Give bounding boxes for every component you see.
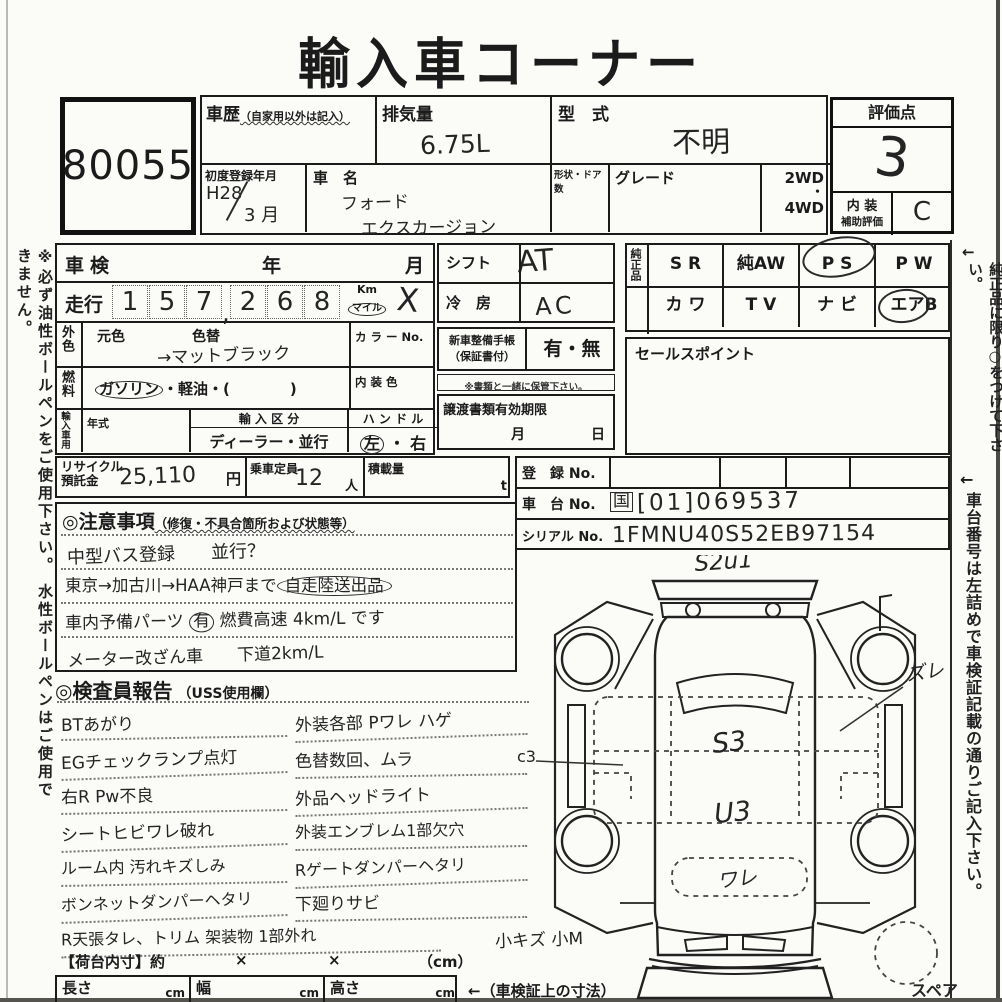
caution-line-2-text: 東京→加古川→HAA神戸まで [65,576,277,595]
diagram-u3-mark: U3 [713,796,753,830]
car-rear-light-left [685,936,727,951]
genuine-parts-row1: 純正品 S R 純AW P S P W [625,243,950,288]
year-type-cell: 年式 [83,410,191,452]
zure-leader-line [840,687,903,731]
dimension-table: 長さ cm 幅 cm 高さ cm [55,975,457,1002]
inspector-header: ◎検査員報告 （USS使用欄） [55,675,533,704]
recycle-value: 25,110 [119,463,197,491]
shift-ac-box: シフト AT 冷 房 AC [437,243,615,323]
spare-tire-label: スペア [911,981,958,1000]
score-value-area: 3 [833,128,951,191]
first-registration-month: 3 月 [244,201,279,227]
genuine-sr: S R [670,254,701,274]
caution-line-2: 東京→加古川→HAA神戸まで自走陸送出品 [65,572,392,596]
color-no-cell: カ ラ ー No. [349,323,437,366]
fuel-label: 燃料 [57,370,76,398]
displacement-label: 排気量 [382,100,545,125]
inspector-rule [57,701,529,703]
import-class-label: 輸 入 区 分 [191,410,347,428]
right-margin-note-chassis: 車台番号は左詰めで車検証記載の通りご記入下さい。 [960,492,984,962]
serial-no-row: シリアル No. 1FMNU40S52EB97154 [517,520,948,552]
cautions-rule [61,568,513,570]
score-value: 3 [871,126,913,190]
fuel-options-rest: ・軽油・( ) [163,380,297,398]
ps-circle-mark [799,231,879,283]
service-book-label1: 新車整備手帳 [439,332,525,348]
genuine-navi: ナ ビ [817,295,857,315]
service-book-label2: （保証書付） [439,348,525,364]
genuine-kawa: カ ワ [666,295,706,315]
right-arrow-icon: ← [962,243,975,261]
car-right-side-outline [817,602,915,933]
mileage-digit-cell: 1 [112,285,148,319]
car-front-bar [653,581,817,599]
shift-value: AT [516,243,555,280]
load-cell: 積載量 t [365,458,512,496]
genuine-navi-cell: ナ ビ [800,285,876,327]
car-right-front-fender [851,627,915,691]
ac-row: 冷 房 AC [439,284,613,321]
mileage-digit: 1 [122,287,139,317]
caution-line-3-text2: 燃費高速 4km/L です [219,608,385,631]
inspector-right-6: 下廻りサビ [295,886,528,922]
mileage-row: 走行 1 5 7 , 2 6 8 Km マイル X [57,283,433,323]
right-margin-note-genuine: 純正品に限り○をつけて下さい。 [964,262,1002,472]
lot-number: 80055 [62,143,194,189]
cargo-dimension-label: 【荷台内寸】約 [60,953,165,971]
recycle-cell: リサイクル 預託金 25,110 円 [57,458,247,496]
cautions-rule [61,534,513,536]
length-unit: cm [165,986,185,1000]
diagram-top-mark: S2u1 [694,555,754,577]
inspector-left-6: ボンネットダンパーヘタリ [61,884,288,924]
chassis-country-mark: 国 [610,492,633,512]
keep-note-strip: ※書類と一緒に保管下さい。 [437,374,615,391]
load-unit: t [501,479,507,494]
diagram-zure-mark: ズレ [905,659,946,686]
fuel-gasoline-circled: ガソリン [95,381,163,399]
genuine-ps-cell: P S [800,245,876,285]
model-code-label: 型 式 [558,105,609,125]
serial-no-value: 1FMNU40S52EB97154 [612,521,876,548]
sales-point-box: セールスポイント [625,337,950,455]
dimension-note: ←（車検証上の寸法） [468,980,616,1001]
page-title: 輸入車コーナー [0,20,1002,99]
mile-label-circled: マイル [348,303,386,316]
grade-label: グレード [615,167,755,188]
service-book-label-cell: 新車整備手帳 （保証書付） [439,329,527,369]
inspector-right-5: Rゲートダンパーヘタリ [295,849,528,889]
shift-row: シフト AT [439,245,613,284]
mileage-digit: 7 [196,287,213,317]
height-cell: 高さ cm [325,977,459,1002]
reg-divider [609,458,611,487]
inspector-left-3: 右R Pw不良 [61,779,288,815]
inspector-left-4: シートヒビワレ破れ [61,813,288,853]
capacity-cell: 乗車定員 12 人 [247,458,365,496]
caution-line-3: 車内予備パーツ 有 燃費高速 4km/L です [65,603,385,634]
width-label: 幅 [191,979,211,997]
right-arrow-icon2: ← [960,470,973,489]
transfer-day-label: 日 [591,424,605,444]
genuine-kawa-cell: カ ワ [649,285,724,327]
car-left-door-edge [615,619,653,689]
recycle-row: リサイクル 預託金 25,110 円 乗車定員 12 人 積載量 t [55,456,510,498]
car-right-rear-wheel [858,816,908,866]
import-label: 輸入車用 [57,411,71,449]
handle-left-circled: 左 [360,435,384,454]
genuine-pw-cell: P W [876,245,952,285]
mileage-label: 走行 [65,290,103,317]
fuel-label-cell: 燃料 [57,368,83,408]
caution-line-4: メーター改ざん車 下道2km/L [67,638,324,672]
handle-cell: ハ ン ド ル 左 ・ 右 [349,410,437,452]
service-book-options-cell: 有・無 [527,329,617,369]
mileage-digit-cell: 6 [267,285,303,319]
car-rear-bumper-line1 [649,959,821,968]
transfer-doc-label: 譲渡書類有効期限 [439,396,613,421]
mileage-digit: 2 [240,287,257,317]
displacement-value: 6.75L [420,127,546,160]
import-class-cell: 輸 入 区 分 ディーラー・並行 [191,410,349,452]
cautions-header: ◎注意事項（修復・不具合箇所および状態等） [57,504,515,534]
inspector-right-2: 色替数回、ムラ [295,743,528,779]
scan-edge-left [6,0,8,1002]
load-label: 積載量 [365,462,404,476]
inspector-right-3: 外品ヘッドライト [295,777,528,817]
import-label-cell: 輸入車用 [57,410,83,452]
service-book-options: 有・無 [543,338,600,360]
mileage-digit-cell: 2 [230,285,266,319]
cautions-title-note: （修復・不具合箇所および状態等） [155,516,355,531]
c3-leader-line [536,761,623,765]
ac-divider [519,245,521,321]
transfer-doc-box: 譲渡書類有効期限 月 日 [437,394,615,450]
car-damage-diagram: S2u1 S3 U3 ワレ ズレ スペア [535,555,1002,1002]
first-registration-cell: 初度登録年月 H28 3 月 [202,165,307,232]
cautions-rule [61,602,513,604]
shaken-year-label: 年 [262,251,281,278]
car-front-marker-left [686,603,700,617]
cabin-dashed-step-left [594,773,631,799]
interior-score-label-cell: 内 装 補助評価 [833,193,893,235]
car-windshield [677,674,793,713]
width-unit: cm [299,986,319,1000]
width-cell: 幅 cm [191,977,325,1002]
car-rear-light-right [743,936,785,951]
exterior-color-label-cell: 外色 [57,323,83,366]
registration-table: 登 録 No. 車 台 No. 国 [01]069537 シリアル No. 1F… [515,456,950,550]
model-code-value: 不明 [672,118,731,161]
airbag-circle-mark [876,286,931,325]
genuine-parts-row2: カ ワ T V ナ ビ エアB [625,285,950,332]
car-left-side-outline [555,602,653,933]
inspector-title-note: （USS使用欄） [178,686,279,702]
genuine-tv-cell: T V [724,285,800,327]
diagram-s3-mark: S3 [710,726,747,760]
import-row: 輸入車用 年式 輸 入 区 分 ディーラー・並行 ハ ン ド ル 左 ・ 右 [57,410,433,452]
drive-4wd-label: 4WD [768,199,824,217]
inspector-right-1: 外装各部 Pワレ ハゲ [295,703,528,743]
shape-doors-cell: 形状・ドア数 [552,165,610,232]
keep-note: ※書類と一緒に保管下さい。 [464,382,587,393]
inspector-left-1: BTあがり [61,707,287,741]
genuine-pw: P W [895,254,932,274]
mileage-digit: 6 [277,287,294,317]
interior-label-line2: 補助評価 [833,214,891,229]
color-change-value: →マットブラック [157,339,291,369]
car-left-rear-fender [555,809,619,873]
fuel-row: 燃料 ガソリン・軽油・( ) 内 装 色 [57,368,433,410]
interior-color-cell: 内 装 色 [349,368,437,408]
genuine-aw-cell: 純AW [724,245,800,285]
inspector-left-5: ルーム内 汚れキズしみ [61,851,288,887]
car-right-rear-fender [851,809,915,873]
capacity-value: 12 [295,466,323,491]
shift-label: シフト [446,252,491,273]
car-rear-panel-line [657,927,813,935]
ac-label: 冷 房 [446,292,491,313]
shaken-row: 車検 年 月 [57,245,433,283]
caution-line-3-circled: 有 [189,612,214,632]
cargo-x1: × [235,951,248,969]
car-body-outline [655,617,815,955]
shaken-month-label: 月 [405,251,424,278]
interior-score-value-cell: C [893,193,951,235]
mileage-cross-mark: X [395,280,421,320]
reg-divider [785,458,787,487]
year-type-label: 年式 [87,417,109,430]
ac-value: AC [534,291,576,321]
reg-no-row: 登 録 No. [517,458,948,489]
cautions-rule [61,636,513,638]
inspector-right-4: 外装エンブレム1部欠穴 [295,815,528,851]
drive-type-cell: 2WD ・ 4WD [762,165,830,232]
score-header: 評価点 [833,100,951,128]
chassis-no-value: [01]069537 [637,488,802,517]
lot-number-box: 80055 [60,97,196,235]
mileage-digit: 5 [159,287,176,317]
drive-dot: ・ [768,187,824,199]
cargo-x2: × [328,951,341,969]
cabin-dashed-step-right [841,773,878,799]
first-registration-label: 初度登録年月 [205,167,302,184]
car-left-rear-wheel [562,816,612,866]
handle-dot: ・ [389,434,405,453]
capacity-label: 乗車定員 [247,462,298,476]
grade-cell: グレード [610,165,762,232]
height-label: 高さ [325,979,360,997]
sales-point-label: セールスポイント [635,345,755,363]
diagram-ware-mark: ワレ [716,864,759,893]
exterior-color-label: 外色 [57,325,76,353]
inspector-title: ◎検査員報告 [55,679,172,703]
caution-line-1: 中型バス登録 並行？ [67,537,266,570]
genuine-aw: 純AW [737,254,785,274]
inspector-c3-mark: c3 [517,747,536,766]
interior-score-value: C [913,197,931,227]
history-cell: 車歴（自家用以外は記入） [202,97,377,165]
length-label: 長さ [57,979,92,997]
mileage-digit-cell: 5 [149,285,185,319]
mileage-digit: 8 [314,287,331,317]
inspector-left-2: EGチェックランプ点灯 [61,741,288,781]
caution-line-2-circled: 自走陸送出品 [277,576,392,596]
serial-no-label: シリアル No. [517,520,603,545]
car-right-front-wheel [858,634,908,684]
handle-label: ハ ン ド ル [349,410,437,428]
handle-right: 右 [410,434,426,453]
original-color-label: 元色 [97,326,125,346]
interior-score-row: 内 装 補助評価 C [833,191,951,235]
inspector-report: ◎検査員報告 （USS使用欄） BTあがり 外装各部 Pワレ ハゲ EGチェック… [55,675,533,965]
car-left-door-window [568,705,585,807]
genuine-airbag-cell: エアB [876,285,952,327]
interior-color-label: 内 装 色 [355,375,398,389]
car-left-front-wheel [562,634,612,684]
shaken-label: 車検 [65,251,115,278]
auction-sheet: 輸入車コーナー 80055 車歴（自家用以外は記入） 排気量 6.75L 型 式… [0,0,1002,1002]
genuine-sr-cell: S R [649,245,724,285]
car-right-door-window [885,705,902,807]
interior-label-line1: 内 装 [833,195,891,214]
km-label: Km [343,283,391,296]
import-class-value: ディーラー・並行 [191,431,347,452]
reg-no-label: 登 録 No. [517,458,596,483]
history-note: （自家用以外は記入） [240,110,350,123]
car-second-bar [661,603,809,617]
cargo-dimension-line: 【荷台内寸】約 × × （cm） [60,951,530,973]
exterior-color-row: 外色 元色 色替 →マットブラック カ ラ ー No. [57,323,433,368]
car-name-cell: 車 名 フォード エクスカージョン [307,165,552,232]
chassis-no-row: 車 台 No. 国 [01]069537 [517,489,948,520]
score-label: 評価点 [868,103,916,122]
car-rear-bumper-skirt [638,968,832,998]
shape-doors-label: 形状・ドア数 [554,167,606,195]
service-book-box: 新車整備手帳 （保証書付） 有・無 [437,327,615,371]
car-left-front-fender [555,627,619,691]
height-unit: cm [435,986,455,1000]
cautions-title: ◎注意事項 [62,511,155,533]
cautions-box: ◎注意事項（修復・不具合箇所および状態等） 中型バス登録 並行？ 東京→加古川→… [55,502,517,672]
mileage-digit-cell: 7 [186,285,222,319]
genuine-tv: T V [746,295,777,315]
length-cell: 長さ cm [57,977,191,1002]
genuine-parts-label-cell2 [627,285,649,330]
chassis-no-label: 車 台 No. [517,489,596,514]
cargo-unit: （cm） [418,951,473,972]
capacity-unit: 人 [345,475,358,494]
spare-tire-circle [875,922,937,984]
car-name-line2: エクスカージョン [361,211,544,239]
fuel-options: ガソリン・軽油・( ) [95,378,297,399]
score-box: 評価点 3 内 装 補助評価 C [830,97,954,234]
genuine-parts-label: 純正品 [627,248,643,281]
left-margin-note: ※必ず油性ボールペンをご使用下さい。 水性ボールペンはご使用できません。 [14,248,56,808]
model-code-cell: 型 式 不明 [552,97,830,165]
history-label: 車歴 [206,105,240,125]
transfer-month-label: 月 [511,424,525,444]
reg-divider [849,458,851,487]
car-front-marker-right [766,603,780,617]
recycle-yen: 円 [226,468,241,489]
displacement-cell: 排気量 6.75L [377,97,552,165]
car-right-door-edge [817,619,855,689]
mileage-digit-cell: 8 [304,285,340,319]
mileage-unit-stack: Km マイル [343,283,391,316]
reg-divider [719,458,721,487]
caution-line-3-text: 車内予備パーツ [65,612,184,634]
color-no-label: カ ラ ー No. [355,330,423,344]
